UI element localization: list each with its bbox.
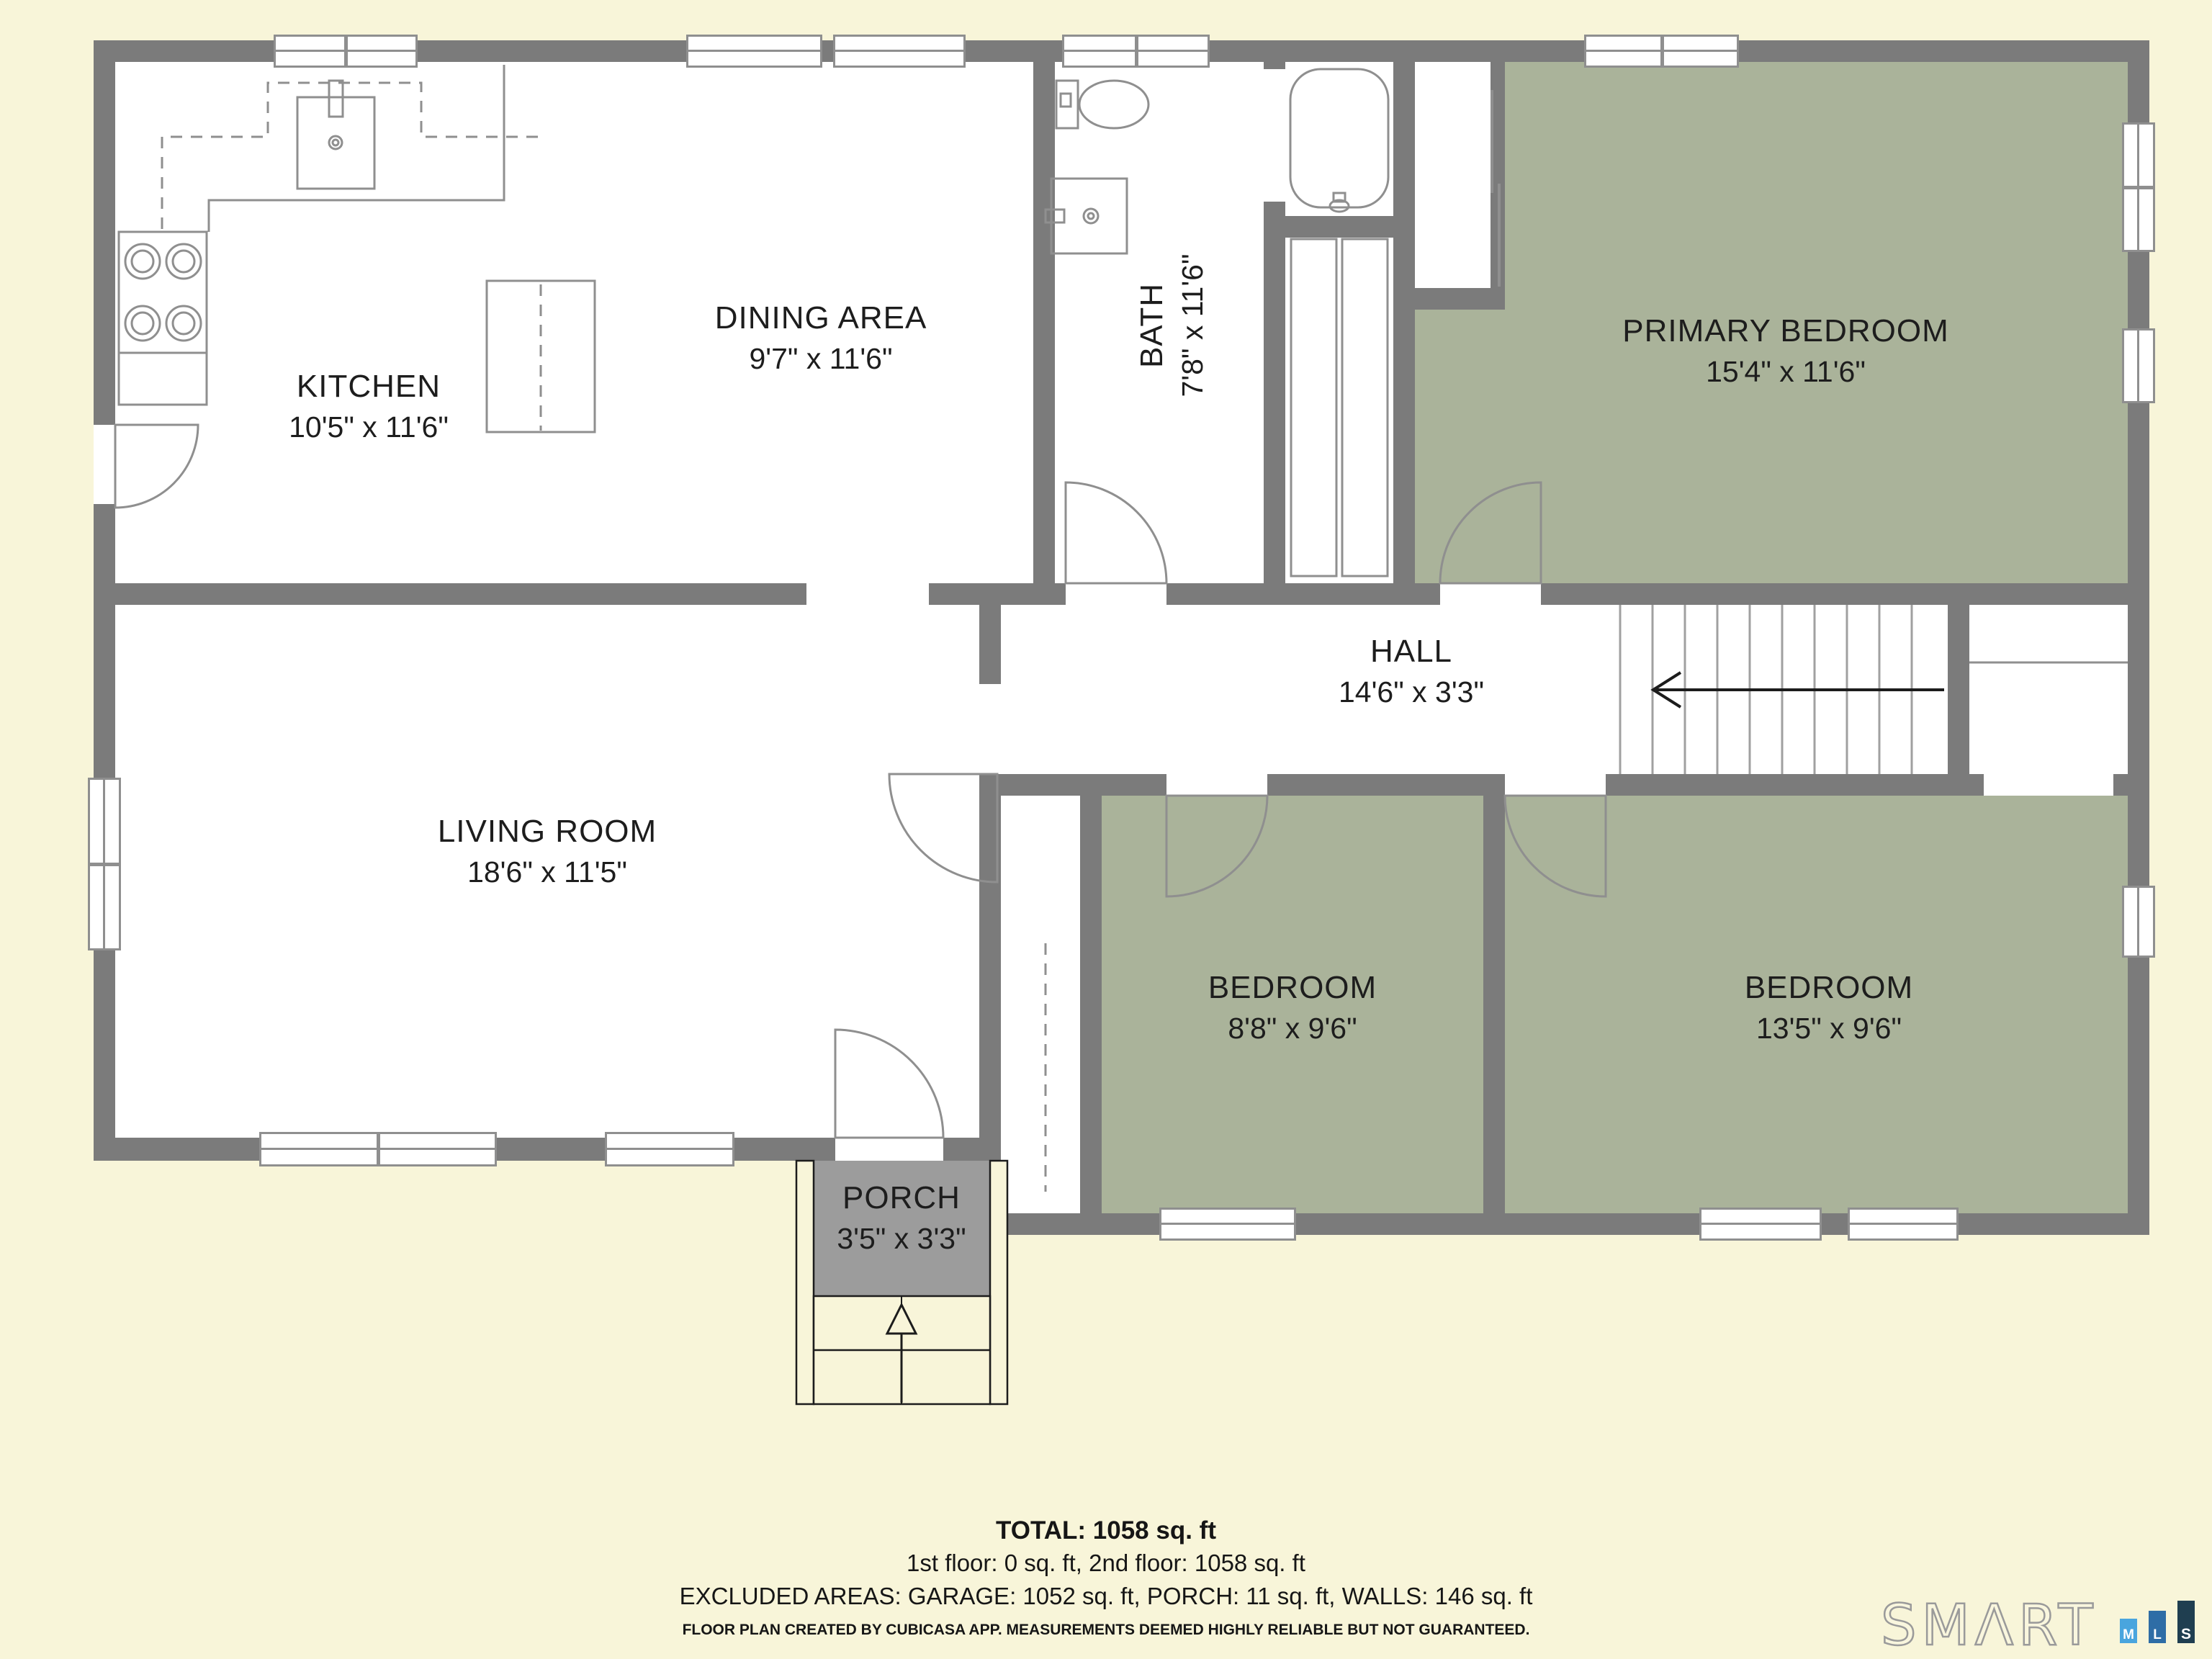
room-label-living-room: LIVING ROOM 18'6" x 11'5" <box>438 811 657 892</box>
excluded-areas-text: EXCLUDED AREAS: GARAGE: 1052 sq. ft, POR… <box>0 1583 2212 1610</box>
living-hall-door-arc <box>889 774 997 882</box>
kitchen-upper-cabinets-dashed <box>162 83 1046 1192</box>
room-label-bath: BATH 7'8" x 11'6" <box>1132 253 1213 397</box>
stairs-direction-arrow <box>1653 673 1944 707</box>
room-label-bedroom1: BEDROOM 8'8" x 9'6" <box>1208 968 1377 1048</box>
bath-door-arc <box>1066 482 1166 583</box>
floor-plan: SMΛRT M L S KITCHEN 10'5" x 11'6" DINING… <box>0 0 2212 1659</box>
room-label-kitchen: KITCHEN 10'5" x 11'6" <box>289 367 449 447</box>
sliding-closet-doors <box>1492 90 1499 287</box>
porch-rail-left <box>796 1161 814 1404</box>
primary-bedroom-door-arc <box>1440 482 1541 583</box>
room-label-bedroom2: BEDROOM 13'5" x 9'6" <box>1745 968 1913 1048</box>
stove-icon <box>119 232 207 405</box>
toilet-icon <box>1056 81 1148 128</box>
bedroom2-door-arc <box>1505 796 1606 896</box>
plan-fixtures-overlay: SMΛRT M L S <box>0 0 2212 1659</box>
disclaimer-text: FLOOR PLAN CREATED BY CUBICASA APP. MEAS… <box>0 1622 2212 1639</box>
room-label-hall: HALL 14'6" x 3'3" <box>1339 631 1484 712</box>
bath-vanity-icon <box>1046 179 1127 253</box>
porch-rail-right <box>990 1161 1007 1404</box>
bedroom1-door-arc <box>1166 796 1267 896</box>
bathtub-icon <box>1290 69 1388 212</box>
front-door-arc <box>835 1030 943 1138</box>
room-label-primary-bedroom: PRIMARY BEDROOM 15'4" x 11'6" <box>1622 311 1948 392</box>
room-label-dining: DINING AREA 9'7" x 11'6" <box>715 298 927 379</box>
total-area-text: TOTAL: 1058 sq. ft <box>0 1516 2212 1545</box>
room-label-porch: PORCH 3'5" x 3'3" <box>837 1178 966 1259</box>
floor-areas-text: 1st floor: 0 sq. ft, 2nd floor: 1058 sq.… <box>0 1550 2212 1577</box>
kitchen-side-door-arc <box>115 425 198 508</box>
kitchen-sink-icon <box>297 81 374 189</box>
kitchen-cabinet <box>119 353 207 405</box>
hall-closet-doors <box>1291 239 1388 576</box>
